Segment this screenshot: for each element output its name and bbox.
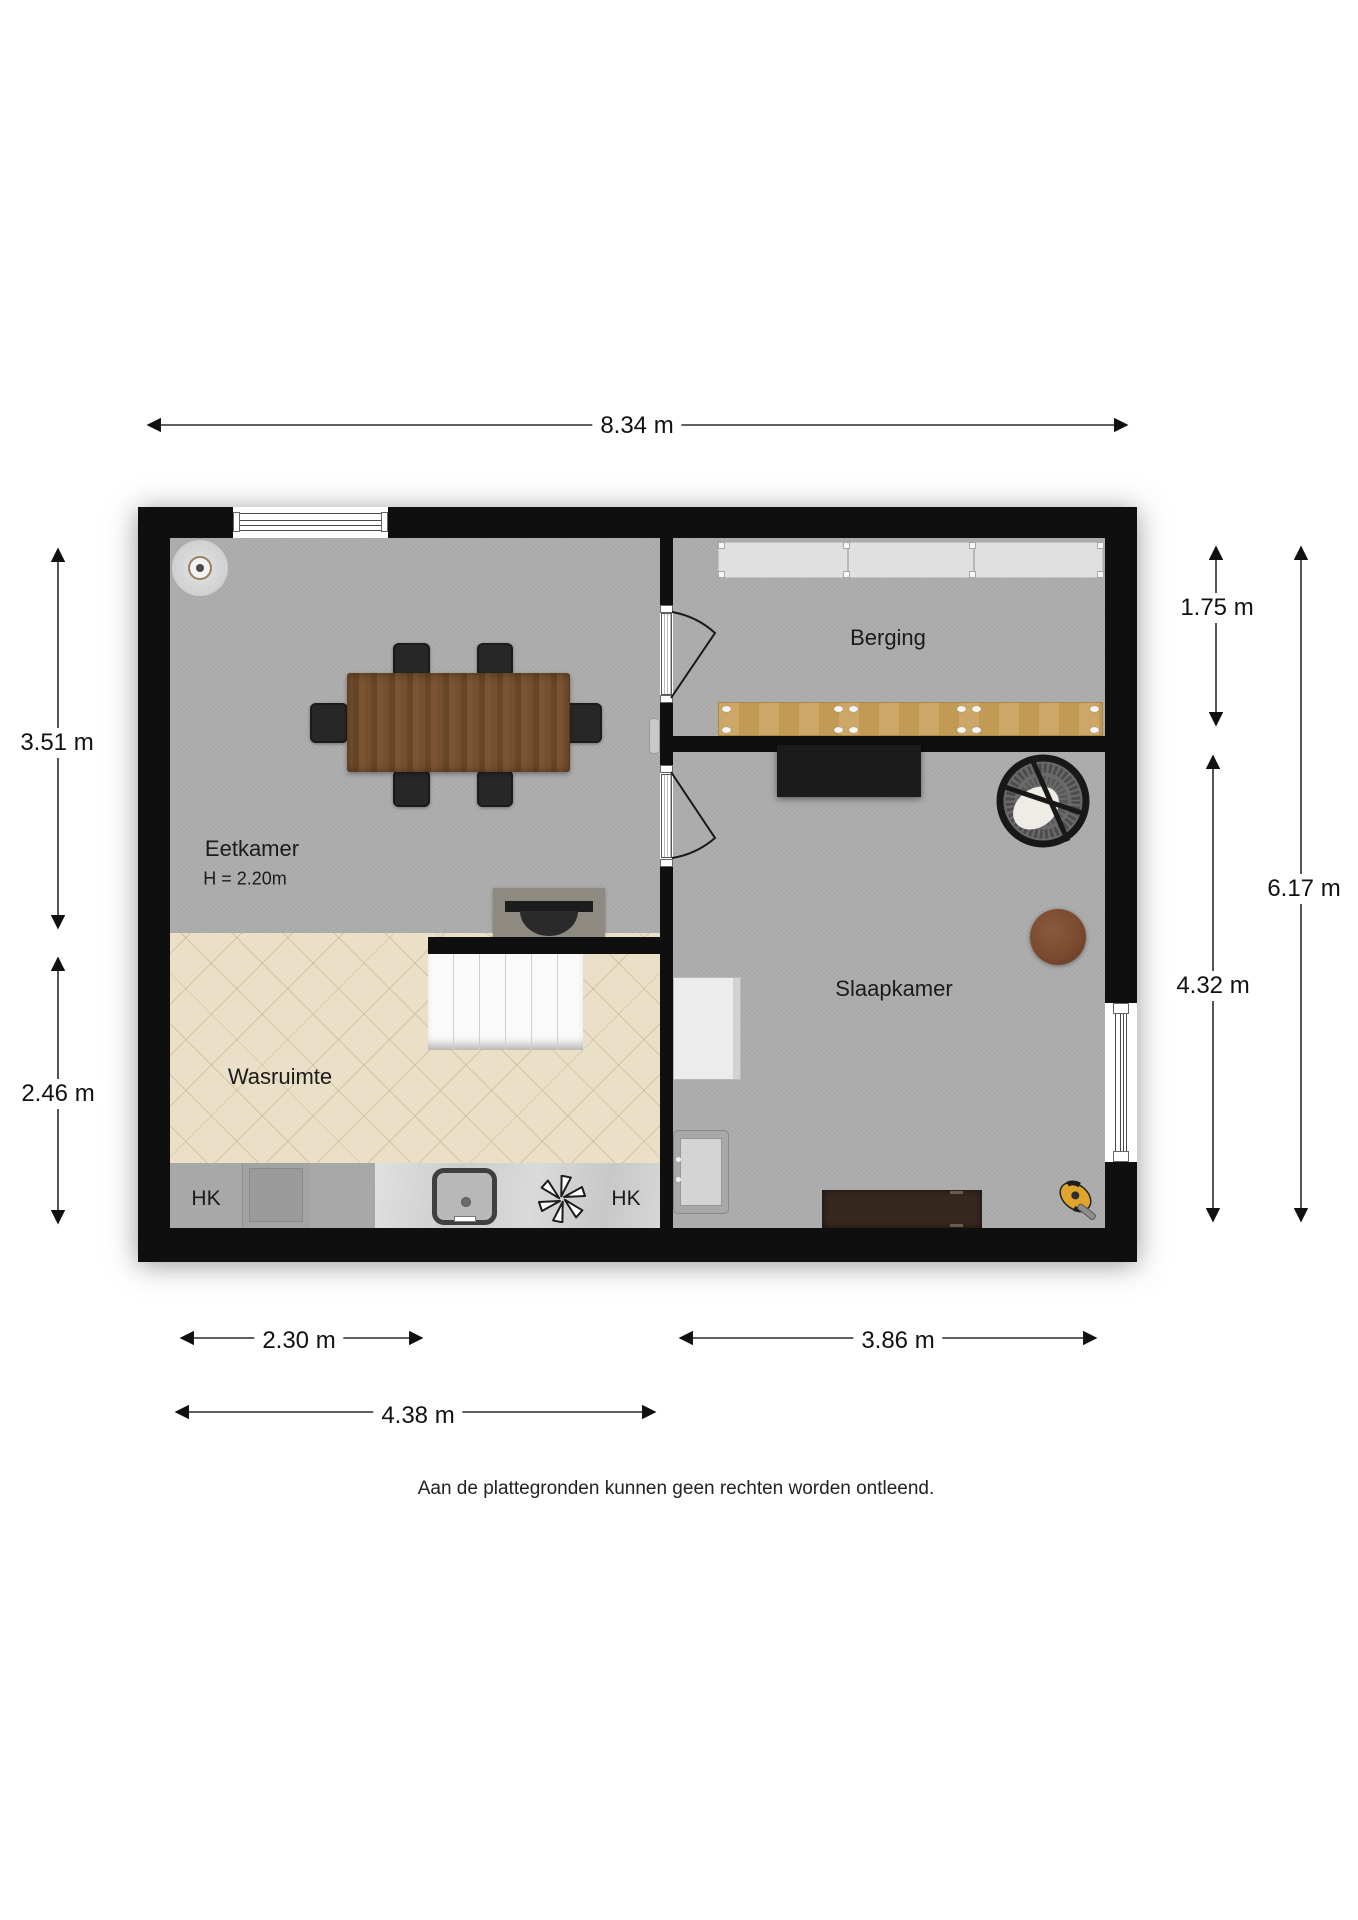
extractor-fan-icon [538, 1175, 586, 1223]
stairs-icon [428, 954, 583, 1050]
floorplan: HK HK Eetkamer H = 2.20m Wasruimte Bergi… [138, 507, 1137, 1262]
dining-chair-icon [393, 770, 430, 807]
wasruimte-wall [428, 937, 660, 954]
room-label-wasruimte: Wasruimte [228, 1064, 332, 1090]
room-label-berging: Berging [850, 625, 926, 651]
storage-shelf-icon [718, 542, 1103, 578]
window-top-icon [233, 507, 388, 538]
dining-chair-icon [393, 643, 430, 677]
dim-slaapkamer-width: 3.86 m [853, 1326, 942, 1356]
dresser-icon [822, 1190, 982, 1228]
window-right-icon [1105, 1003, 1137, 1162]
radiator-icon [649, 718, 660, 754]
ceiling-height-label: H = 2.20m [203, 869, 287, 890]
dining-chair-icon [477, 770, 513, 807]
washing-machine-icon [243, 1163, 310, 1228]
toy-icon [1051, 1176, 1101, 1226]
dim-total-width: 8.34 m [592, 411, 681, 441]
kitchen-sink-icon [432, 1168, 497, 1225]
desk-icon [777, 745, 921, 797]
dim-wasruimte-width: 2.30 m [254, 1326, 343, 1356]
ceiling-light-icon [172, 540, 228, 596]
hanging-chair-icon [996, 754, 1090, 848]
hk-label-right: HK [611, 1187, 640, 1211]
room-label-slaapkamer: Slaapkamer [835, 976, 952, 1002]
dim-eetkamer-height: 3.51 m [12, 728, 101, 758]
dim-slaapkamer-depth: 4.32 m [1168, 971, 1257, 1001]
room-label-eetkamer: Eetkamer [205, 836, 299, 862]
dining-chair-icon [310, 703, 348, 743]
kitchen-counter: HK HK [170, 1163, 660, 1228]
dining-table-icon [347, 673, 570, 772]
wall-heater-icon [673, 1130, 729, 1214]
disclaimer-text: Aan de plattegronden kunnen geen rechten… [418, 1478, 935, 1500]
counter-panel [310, 1163, 375, 1228]
dining-chair-icon [477, 643, 513, 677]
dim-wasruimte-height: 2.46 m [13, 1079, 102, 1109]
dim-total-depth: 6.17 m [1259, 874, 1348, 904]
floorplan-page: { "floorplan": { "rooms": { "eetkamer": … [0, 0, 1358, 1920]
side-table-icon [1030, 909, 1086, 965]
washbasin-icon [493, 888, 605, 937]
cabinet-icon [673, 977, 741, 1080]
hk-label-left: HK [191, 1187, 220, 1211]
dim-left-section-width: 4.38 m [373, 1401, 462, 1431]
workbench-icon [718, 702, 1103, 736]
dim-berging-depth: 1.75 m [1172, 593, 1261, 623]
